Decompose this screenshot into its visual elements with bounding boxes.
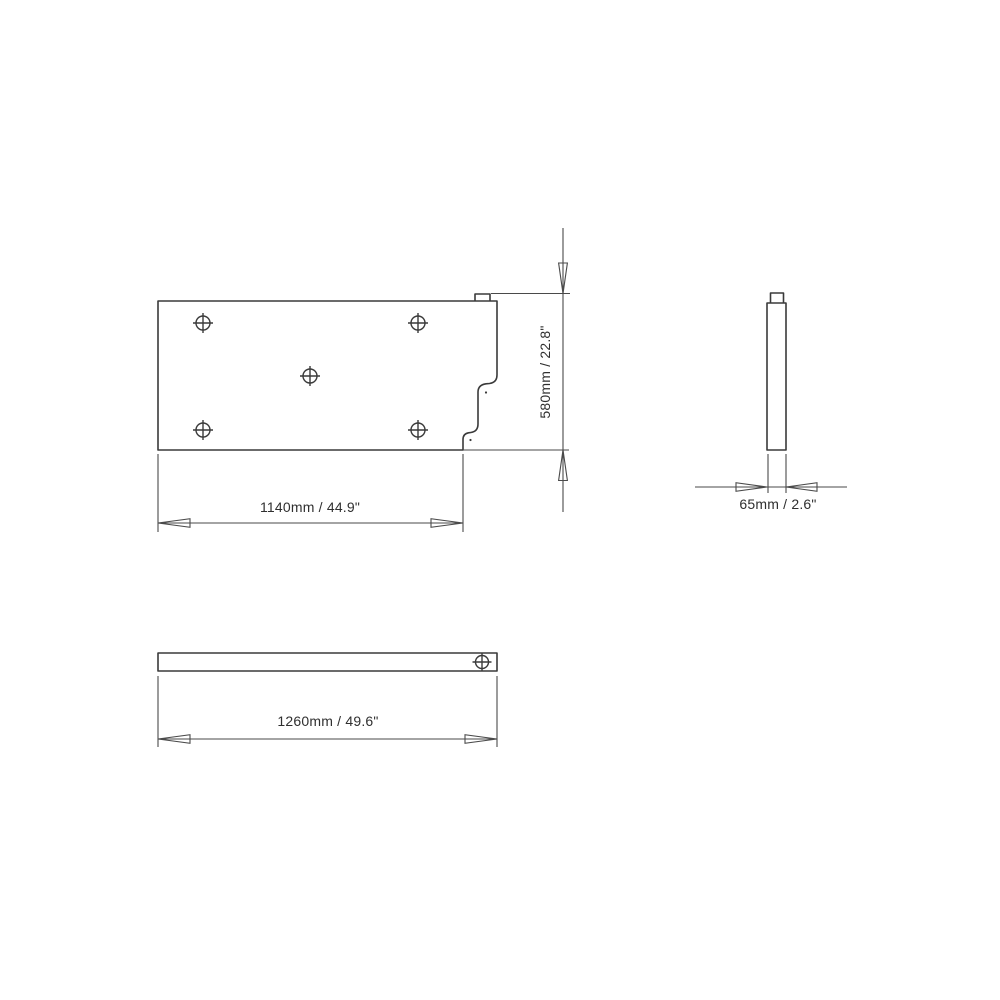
dimension-top-length: 1260mm / 49.6" (158, 676, 497, 747)
dimension-side-thickness: 65mm / 2.6" (695, 454, 847, 512)
side-view-body (767, 303, 786, 450)
hole-marker-top-right (408, 313, 428, 333)
side-view (767, 293, 786, 450)
fillet-center-mark (485, 391, 487, 393)
hole-marker-bottom-right (408, 420, 428, 440)
front-height-label: 580mm / 22.8" (537, 325, 553, 418)
top-view (158, 653, 497, 672)
front-view (158, 294, 497, 450)
dimension-front-width: 1140mm / 44.9" (158, 454, 463, 532)
top-view-bar (158, 653, 497, 671)
fillet-center-mark (469, 439, 471, 441)
hole-marker-bottom-left (193, 420, 213, 440)
side-thickness-label: 65mm / 2.6" (739, 496, 816, 512)
front-width-label: 1140mm / 44.9" (260, 499, 360, 515)
technical-drawing: 1140mm / 44.9" 580mm / 22.8" 65mm / 2.6" (0, 0, 1000, 1000)
side-view-top-tab (771, 293, 784, 303)
top-length-label: 1260mm / 49.6" (277, 713, 378, 729)
hole-marker-top-view (473, 653, 492, 672)
hole-marker-center (300, 366, 320, 386)
front-view-top-tab (475, 294, 490, 301)
dimension-front-height: 580mm / 22.8" (463, 228, 570, 512)
hole-marker-top-left (193, 313, 213, 333)
